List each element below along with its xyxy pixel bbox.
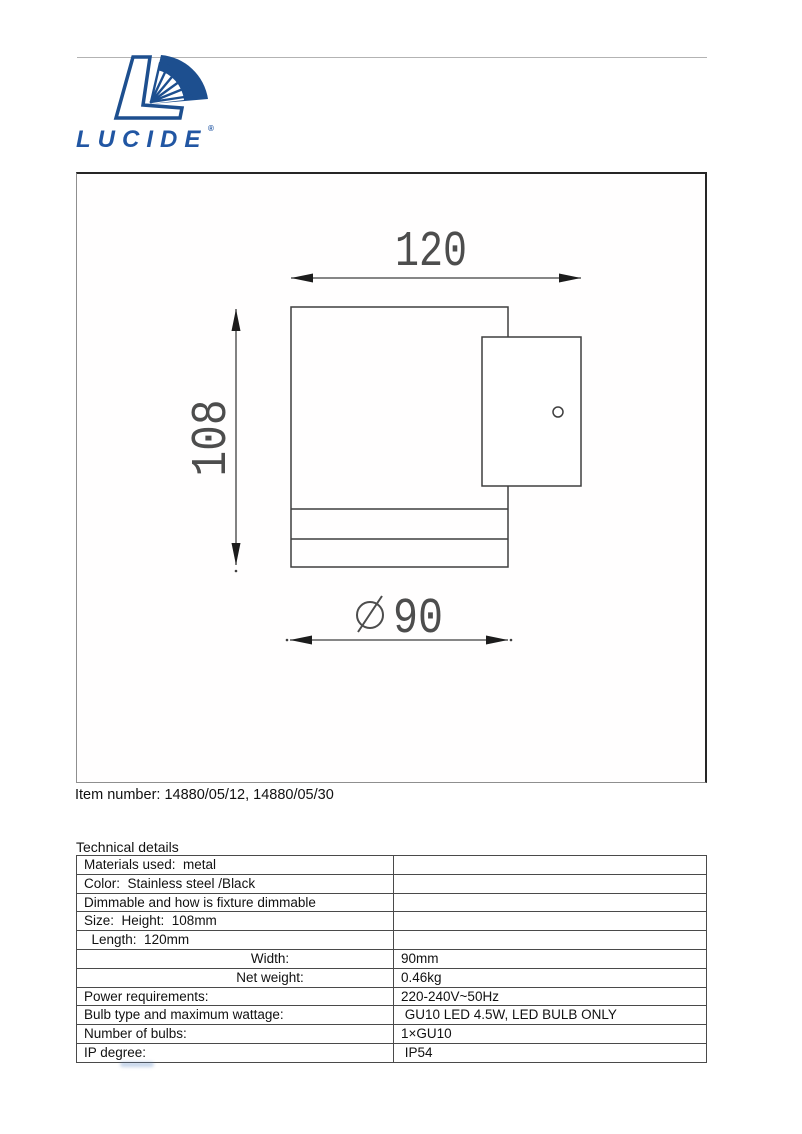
spec-value [394, 912, 707, 931]
table-row: IP degree: IP54 [77, 1043, 707, 1062]
spec-value: 1×GU10 [394, 1025, 707, 1044]
technical-details-table: Materials used: metal Color: Stainless s… [76, 855, 707, 1063]
dimension-depth: 120 [291, 224, 581, 283]
watermark-smudge [120, 1062, 154, 1067]
spec-value [394, 856, 707, 875]
fixture-outline [291, 307, 581, 567]
table-row: Materials used: metal [77, 856, 707, 875]
dimension-depth-label: 120 [395, 224, 467, 281]
arrowhead-down-icon [232, 543, 241, 565]
table-row: Net weight: 0.46kg [77, 968, 707, 987]
dimension-height-label: 108 [184, 400, 241, 477]
lucide-logo-emblem [110, 50, 215, 125]
table-row: Color: Stainless steel /Black [77, 874, 707, 893]
spec-label: IP degree: [77, 1043, 394, 1062]
spec-label: Materials used: metal [77, 856, 394, 875]
spec-value: 90mm [394, 949, 707, 968]
technical-drawing: 120 108 90 [77, 174, 705, 781]
table-row: Length: 120mm [77, 931, 707, 950]
brand-wordmark: LUCIDE [76, 126, 207, 154]
spec-value: GU10 LED 4.5W, LED BULB ONLY [394, 1006, 707, 1025]
wall-mount-plate [482, 337, 581, 486]
spec-value [394, 874, 707, 893]
spec-label: Bulb type and maximum wattage: [77, 1006, 394, 1025]
spec-value [394, 893, 707, 912]
registered-trademark-mark: ® [208, 124, 214, 133]
arrowhead-left-icon [290, 636, 312, 645]
spec-value: 0.46kg [394, 968, 707, 987]
arrowhead-left-icon [291, 274, 313, 283]
table-row: Bulb type and maximum wattage: GU10 LED … [77, 1006, 707, 1025]
dimension-height: 108 [184, 309, 241, 572]
spec-label: Color: Stainless steel /Black [77, 874, 394, 893]
arrowhead-right-icon [486, 636, 508, 645]
technical-details-heading: Technical details [76, 839, 179, 855]
spec-label: Length: 120mm [77, 931, 394, 950]
spec-label: Dimmable and how is fixture dimmable [77, 893, 394, 912]
spec-value: 220-240V~50Hz [394, 987, 707, 1006]
table-row: Power requirements: 220-240V~50Hz [77, 987, 707, 1006]
table-row: Width: 90mm [77, 949, 707, 968]
table-row: Size: Height: 108mm [77, 912, 707, 931]
dimension-diameter-label: 90 [393, 591, 443, 648]
arrowhead-right-icon [559, 274, 581, 283]
spec-label: Width: [77, 949, 394, 968]
spec-value: IP54 [394, 1043, 707, 1062]
arrowhead-up-icon [232, 309, 241, 331]
spec-label: Net weight: [77, 968, 394, 987]
table-row: Dimmable and how is fixture dimmable [77, 893, 707, 912]
diameter-symbol-icon [357, 596, 383, 632]
dimension-diameter: 90 [286, 591, 513, 648]
item-number-text: Item number: 14880/05/12, 14880/05/30 [75, 787, 334, 803]
lamp-body [291, 307, 508, 567]
table-row: Number of bulbs: 1×GU10 [77, 1025, 707, 1044]
spec-value [394, 931, 707, 950]
spec-label: Size: Height: 108mm [77, 912, 394, 931]
spec-label: Power requirements: [77, 987, 394, 1006]
spec-label: Number of bulbs: [77, 1025, 394, 1044]
